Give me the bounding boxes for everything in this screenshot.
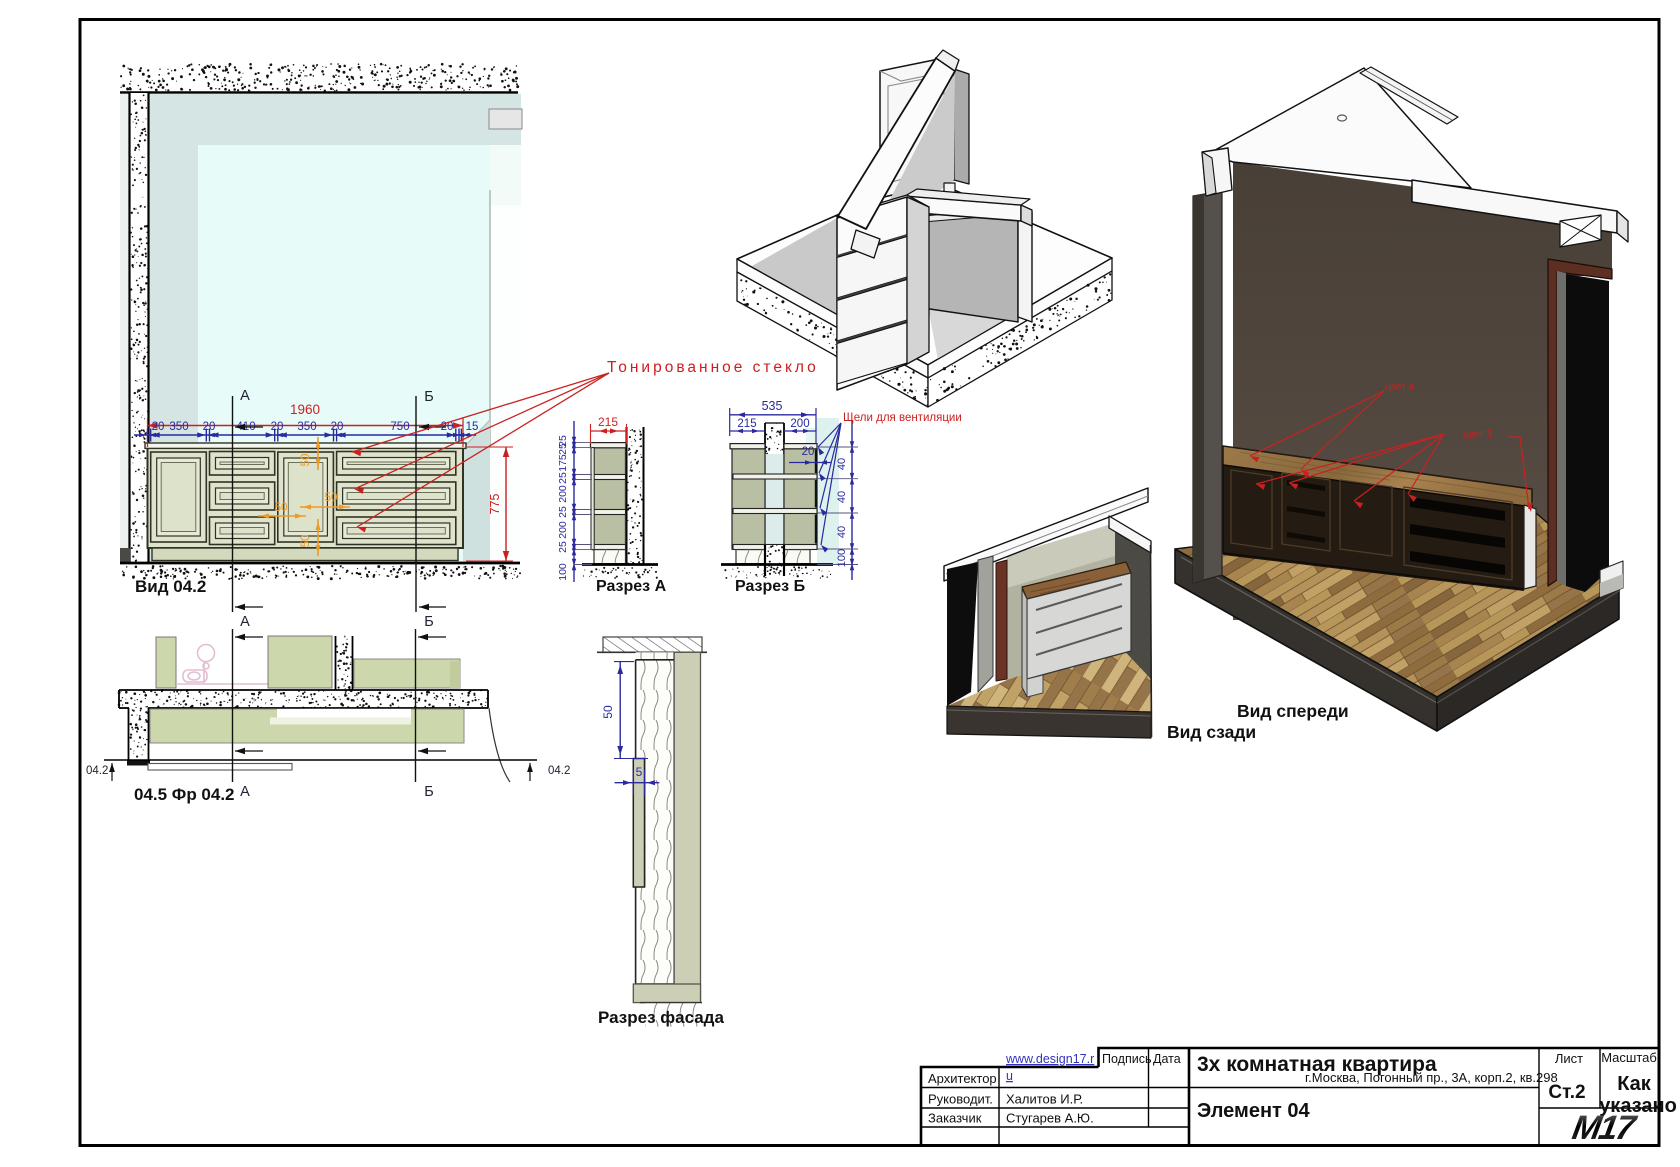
svg-text:04.5 Фр 04.2: 04.5 Фр 04.2 xyxy=(134,785,235,804)
svg-text:Архитектор: Архитектор xyxy=(928,1071,997,1086)
svg-text:Дата: Дата xyxy=(1153,1052,1181,1066)
svg-text:Б: Б xyxy=(424,389,434,405)
svg-text:200: 200 xyxy=(557,485,569,503)
svg-text:Тонированное стекло: Тонированное стекло xyxy=(607,359,819,376)
svg-text:535: 535 xyxy=(762,399,783,413)
svg-text:Подпись: Подпись xyxy=(1102,1052,1151,1066)
svg-text:u: u xyxy=(1006,1069,1013,1083)
svg-text:750: 750 xyxy=(390,421,409,433)
svg-text:www.design17.r: www.design17.r xyxy=(1005,1052,1094,1066)
svg-text:25: 25 xyxy=(557,443,569,455)
svg-text:5: 5 xyxy=(636,765,643,779)
svg-text:350: 350 xyxy=(169,421,188,433)
svg-text:Лист: Лист xyxy=(1555,1051,1583,1066)
svg-text:Разрез Б: Разрез Б xyxy=(735,578,805,595)
svg-text:20: 20 xyxy=(271,421,284,433)
svg-text:г.Москва, Погонный пр., 3А, ко: г.Москва, Погонный пр., 3А, корп.2, кв.2… xyxy=(1305,1070,1558,1085)
svg-text:цвет 3: цвет 3 xyxy=(1463,429,1493,440)
svg-text:175: 175 xyxy=(557,454,569,472)
svg-text:20: 20 xyxy=(152,421,165,433)
svg-text:Стугарев А.Ю.: Стугарев А.Ю. xyxy=(1006,1111,1094,1126)
svg-text:215: 215 xyxy=(598,415,618,429)
svg-text:Вид сзади: Вид сзади xyxy=(1167,722,1256,742)
svg-text:50: 50 xyxy=(325,492,338,504)
svg-text:А: А xyxy=(240,784,250,800)
svg-text:1960: 1960 xyxy=(290,402,320,417)
svg-text:200: 200 xyxy=(557,521,569,539)
svg-text:Б: Б xyxy=(424,614,434,630)
svg-text:Вид 04.2: Вид 04.2 xyxy=(135,577,206,596)
svg-text:40: 40 xyxy=(836,458,848,470)
svg-text:Масштаб: Масштаб xyxy=(1601,1050,1657,1065)
svg-text:100: 100 xyxy=(836,549,848,567)
svg-text:100: 100 xyxy=(557,563,569,581)
svg-text:350: 350 xyxy=(297,421,316,433)
svg-text:Разрез фасада: Разрез фасада xyxy=(598,1008,724,1027)
svg-text:775: 775 xyxy=(488,494,502,515)
svg-text:200: 200 xyxy=(790,418,809,430)
svg-text:25: 25 xyxy=(557,472,569,484)
svg-text:04.2: 04.2 xyxy=(548,765,570,777)
svg-text:Вид спереди: Вид спереди xyxy=(1237,701,1349,721)
svg-text:25: 25 xyxy=(557,541,569,553)
svg-text:50: 50 xyxy=(300,454,312,467)
svg-text:Руководит.: Руководит. xyxy=(928,1092,993,1107)
svg-text:Заказчик: Заказчик xyxy=(928,1111,982,1126)
svg-text:Халитов И.Р.: Халитов И.Р. xyxy=(1006,1092,1083,1107)
svg-text:Ст.2: Ст.2 xyxy=(1548,1082,1585,1103)
svg-text:20: 20 xyxy=(802,446,815,458)
svg-text:20: 20 xyxy=(203,421,216,433)
svg-text:M17: M17 xyxy=(1570,1109,1641,1147)
svg-text:04.2: 04.2 xyxy=(86,765,108,777)
svg-text:Элемент 04: Элемент 04 xyxy=(1197,1100,1311,1122)
svg-text:А: А xyxy=(240,388,250,404)
svg-text:Щели для вентиляции: Щели для вентиляции xyxy=(843,412,962,424)
svg-text:20: 20 xyxy=(331,421,344,433)
svg-text:цвет 4: цвет 4 xyxy=(1385,382,1415,393)
svg-text:Б: Б xyxy=(424,784,434,800)
svg-text:40: 40 xyxy=(836,491,848,503)
svg-text:40: 40 xyxy=(836,526,848,538)
svg-text:50: 50 xyxy=(601,705,615,719)
svg-text:А: А xyxy=(240,614,250,630)
svg-text:25: 25 xyxy=(557,506,569,518)
svg-text:Как: Как xyxy=(1617,1073,1652,1095)
svg-text:15: 15 xyxy=(466,421,479,433)
svg-text:50: 50 xyxy=(275,502,288,514)
svg-text:50: 50 xyxy=(300,535,312,548)
svg-text:215: 215 xyxy=(737,418,756,430)
svg-text:Разрез А: Разрез А xyxy=(596,578,667,595)
